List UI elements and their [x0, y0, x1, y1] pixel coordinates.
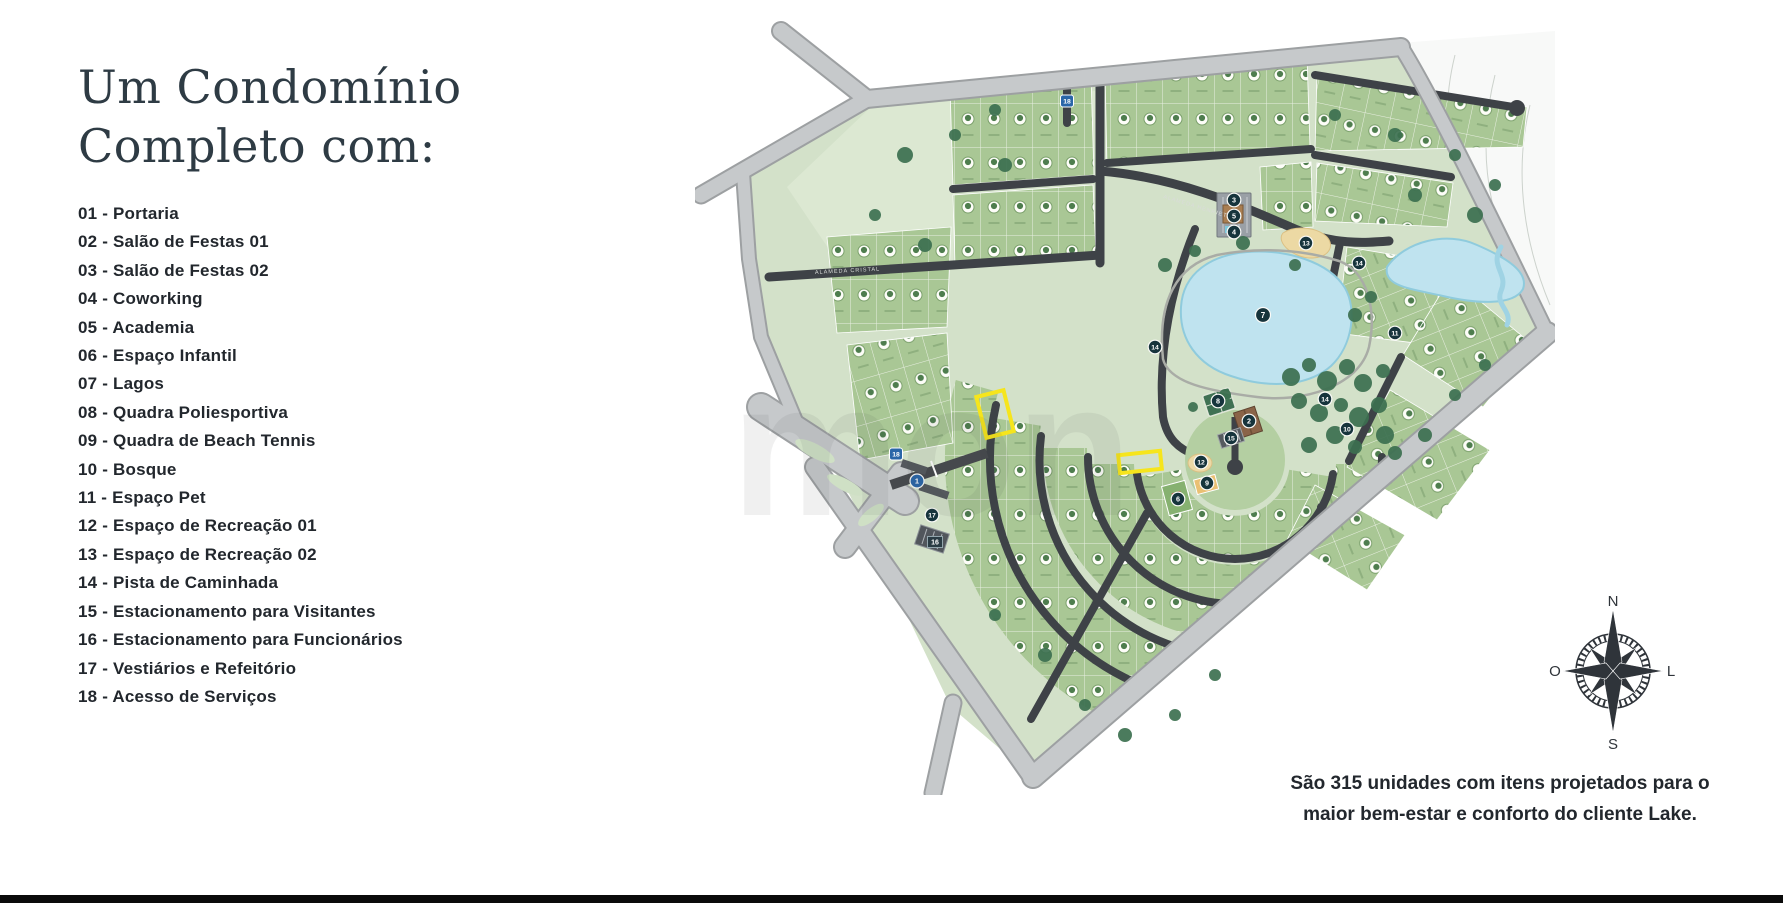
map-marker: 14: [1352, 256, 1366, 270]
legend-item: 11 - Espaço Pet: [78, 484, 403, 512]
svg-text:8: 8: [1216, 397, 1220, 406]
svg-text:10: 10: [1343, 427, 1351, 434]
brochure-page: Um Condomínio Completo com: 01 - Portari…: [0, 0, 1783, 903]
svg-text:12: 12: [1197, 460, 1205, 467]
svg-text:9: 9: [1205, 479, 1209, 488]
legend-item: 06 - Espaço Infantil: [78, 342, 403, 370]
legend-item: 01 - Portaria: [78, 200, 403, 228]
legend-item: 14 - Pista de Caminhada: [78, 569, 403, 597]
map-marker: 14: [1318, 392, 1332, 406]
legend-item: 05 - Academia: [78, 314, 403, 342]
svg-text:2: 2: [1247, 417, 1251, 426]
legend-item: 15 - Estacionamento para Visitantes: [78, 598, 403, 626]
legend-item: 08 - Quadra Poliesportiva: [78, 399, 403, 427]
compass-star: [1563, 609, 1663, 733]
units-caption-line2: maior bem-estar e conforto do cliente La…: [1200, 799, 1783, 830]
core-cul-de-sac: [1227, 459, 1243, 475]
compass-east-label: L: [1667, 663, 1675, 680]
page-title: Um Condomínio Completo com:: [78, 58, 638, 176]
legend-item: 10 - Bosque: [78, 456, 403, 484]
legend-item: 04 - Coworking: [78, 285, 403, 313]
map-marker: 7: [1256, 308, 1271, 323]
map-marker: 15: [1224, 431, 1238, 445]
units-caption: São 315 unidades com itens projetados pa…: [1200, 768, 1783, 830]
map-marker: 18: [1061, 95, 1074, 107]
legend-item: 02 - Salão de Festas 01: [78, 228, 403, 256]
svg-text:14: 14: [1355, 261, 1363, 268]
map-marker: 8: [1211, 394, 1225, 408]
units-caption-line1: São 315 unidades com itens projetados pa…: [1200, 768, 1783, 799]
bottom-bar: [0, 895, 1783, 903]
amenities-legend: 01 - Portaria 02 - Salão de Festas 01 03…: [78, 200, 403, 711]
svg-text:6: 6: [1176, 495, 1180, 504]
svg-text:13: 13: [1302, 241, 1310, 248]
watermark-text: mon: [731, 344, 1132, 556]
map-marker: 9: [1200, 476, 1214, 490]
svg-text:7: 7: [1261, 311, 1266, 320]
legend-item: 12 - Espaço de Recreação 01: [78, 512, 403, 540]
map-marker: 6: [1171, 492, 1185, 506]
legend-item: 18 - Acesso de Serviços: [78, 683, 403, 711]
page-title-line1: Um Condomínio: [78, 58, 638, 117]
map-marker: 3: [1227, 193, 1241, 207]
compass-rose: N S O L: [1547, 593, 1679, 751]
legend-item: 17 - Vestiários e Refeitório: [78, 655, 403, 683]
map-marker: 5: [1227, 209, 1241, 223]
legend-item: 07 - Lagos: [78, 370, 403, 398]
map-marker: 2: [1242, 414, 1256, 428]
map-marker: 14: [1148, 340, 1162, 354]
map-marker: 11: [1388, 326, 1402, 340]
page-title-line2: Completo com:: [78, 117, 638, 176]
legend-item: 03 - Salão de Festas 02: [78, 257, 403, 285]
compass-north-label: N: [1608, 593, 1619, 610]
svg-text:5: 5: [1232, 212, 1236, 221]
svg-text:11: 11: [1391, 331, 1398, 338]
cul-de-sac: [1509, 100, 1525, 116]
svg-text:14: 14: [1321, 397, 1329, 404]
map-marker: 10: [1340, 422, 1354, 436]
svg-text:14: 14: [1151, 345, 1159, 352]
compass-west-label: O: [1549, 663, 1561, 680]
map-marker: 12: [1194, 455, 1208, 469]
map-marker: 4: [1227, 225, 1241, 239]
map-marker: 13: [1299, 236, 1313, 250]
legend-item: 09 - Quadra de Beach Tennis: [78, 427, 403, 455]
svg-text:15: 15: [1227, 436, 1235, 443]
svg-text:18: 18: [1063, 99, 1071, 106]
svg-text:3: 3: [1232, 196, 1236, 205]
compass-south-label: S: [1608, 736, 1618, 751]
legend-item: 13 - Espaço de Recreação 02: [78, 541, 403, 569]
legend-item: 16 - Estacionamento para Funcionários: [78, 626, 403, 654]
site-map: ALAMEDA CRISTAL ALAMEDA HENRIETTA 1 2 3 …: [695, 15, 1555, 795]
svg-text:4: 4: [1232, 228, 1236, 237]
